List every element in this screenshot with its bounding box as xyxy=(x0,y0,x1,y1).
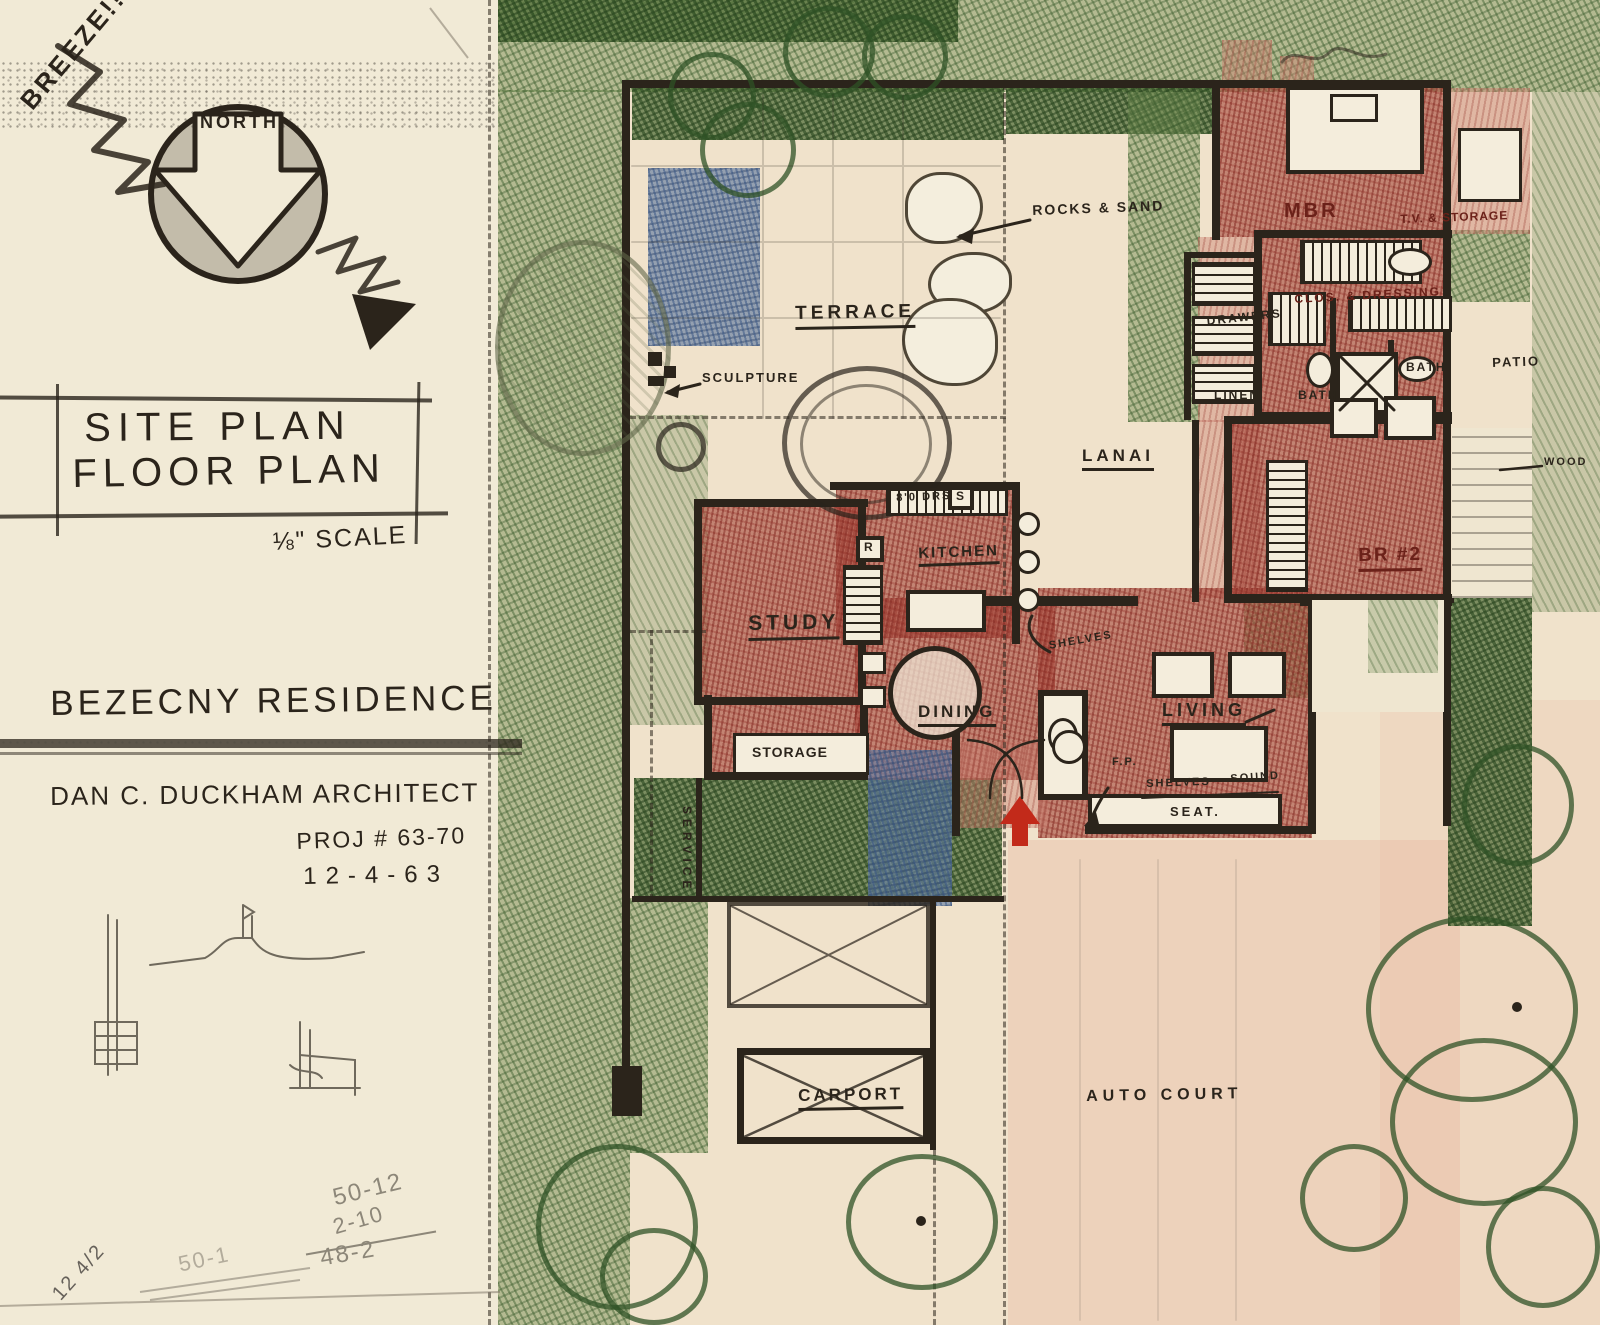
tree-inner-ring xyxy=(800,384,932,504)
sheet-title-line2: FLOOR PLAN xyxy=(72,447,386,497)
wood-deck xyxy=(1452,428,1532,598)
room-br2 xyxy=(1228,420,1448,598)
scale-note: ⅛" SCALE xyxy=(272,521,408,557)
title-box-line xyxy=(415,382,421,544)
label-sculpture: SCULPTURE xyxy=(702,370,799,385)
counter-stool xyxy=(1016,550,1040,574)
label-range: R xyxy=(864,540,875,554)
tree xyxy=(1462,744,1574,866)
room-study xyxy=(698,503,866,703)
bath-cabinet xyxy=(1384,396,1436,440)
room-label-living: LIVING xyxy=(1162,700,1246,726)
living-table xyxy=(1152,652,1214,698)
sheet-title-line1: SITE PLAN xyxy=(84,404,352,451)
rock-garden-stone xyxy=(902,298,998,386)
sheet-divider-dash xyxy=(488,0,491,1325)
faint-scribble xyxy=(140,1268,310,1300)
label-shelves-b: SHELVES xyxy=(1146,776,1211,790)
title-box-line xyxy=(0,511,448,518)
project-date: 12-4-63 xyxy=(303,860,449,891)
dining-chair xyxy=(860,652,886,674)
label-door-note: 8'0 DRS xyxy=(896,490,952,504)
wall-segment xyxy=(694,499,702,705)
label-switch: S xyxy=(956,489,966,503)
dash-line-study xyxy=(630,630,706,633)
wall-segment xyxy=(1212,85,1220,240)
wall-segment xyxy=(1224,416,1232,602)
kitchen-island xyxy=(906,590,986,632)
property-line-right xyxy=(1443,80,1451,826)
tree xyxy=(700,102,796,198)
room-label-bath: BATH xyxy=(1298,388,1338,402)
spa xyxy=(868,750,952,906)
wall-segment xyxy=(1256,230,1452,238)
property-line-left xyxy=(622,80,630,1112)
tree xyxy=(1390,1038,1578,1206)
vanity-oval xyxy=(1388,248,1432,276)
north-label: NORTH xyxy=(200,112,279,133)
planting-right-margin xyxy=(1532,92,1600,612)
room-label-dining: DINING xyxy=(918,702,996,727)
counter-stool xyxy=(1016,588,1040,612)
corner-storage-box xyxy=(1458,128,1522,202)
br2-shelves xyxy=(1266,460,1308,592)
bath-cabinet xyxy=(1330,398,1378,438)
rule-heavy xyxy=(0,739,522,748)
dash-line-service xyxy=(650,630,653,900)
faint-note: 50-1 xyxy=(176,1241,232,1277)
tree-trunk-dot xyxy=(1512,1002,1522,1012)
room-label-terrace: TERRACE xyxy=(795,301,915,330)
room-label-kitchen: KITCHEN xyxy=(918,542,999,567)
label-service: SERVICE xyxy=(680,806,694,893)
label-linen: LINEN xyxy=(1214,388,1260,402)
entry-arrow-shaft xyxy=(1012,822,1028,846)
drawers-unit xyxy=(1192,262,1256,306)
living-table xyxy=(1228,652,1286,698)
sculpture-block xyxy=(648,352,662,366)
title-box-line xyxy=(56,384,59,536)
mbr-pillow xyxy=(1330,94,1378,122)
project-number: PROJ # 63-70 xyxy=(296,822,467,855)
wall-segment xyxy=(1184,252,1262,258)
wall-segment xyxy=(694,697,870,705)
breeze-arrowhead-icon xyxy=(352,294,416,350)
patio2-plant xyxy=(1368,600,1438,673)
corner-scrawl: 12 4/2 xyxy=(48,1240,110,1306)
toilet xyxy=(1306,352,1334,388)
calc-note: 48-2 xyxy=(318,1235,378,1272)
title-box-line xyxy=(0,395,432,402)
tree xyxy=(495,240,671,456)
room-label-storage: STORAGE xyxy=(752,744,828,760)
tree xyxy=(1486,1186,1600,1308)
rule-thin xyxy=(0,752,522,755)
planting-upper-patio xyxy=(1450,230,1530,302)
tree xyxy=(600,1228,708,1325)
room-label-carport: CARPORT xyxy=(798,1084,903,1111)
tree xyxy=(1300,1144,1408,1252)
residence-name: BEZECNY RESIDENCE xyxy=(50,679,497,724)
wall-segment xyxy=(952,732,960,836)
architect-name: DAN C. DUCKHAM ARCHITECT xyxy=(50,777,480,812)
room-label-mbr: MBR xyxy=(1284,200,1339,223)
entry-planter xyxy=(1052,730,1086,764)
carport-stall-upper xyxy=(727,902,930,1008)
property-end-blob xyxy=(612,1066,642,1116)
counter-stool xyxy=(1016,512,1040,536)
wall-segment xyxy=(696,778,702,900)
sculpture-block xyxy=(664,366,676,378)
room-label-lanai: LANAI xyxy=(1082,446,1154,471)
label-wood: WOOD xyxy=(1544,456,1587,468)
wall-segment xyxy=(1184,252,1191,420)
room-label-auto-court: AUTO COURT xyxy=(1086,1085,1243,1106)
stair-hatch xyxy=(843,565,883,645)
sculpture-block xyxy=(648,376,664,386)
dining-chair xyxy=(860,686,886,708)
label-seat: SEAT. xyxy=(1170,804,1221,819)
tree xyxy=(656,422,706,472)
wall-segment xyxy=(930,900,936,1150)
room-label-patio-upper: PATIO xyxy=(1492,353,1540,370)
room-label-br2: BR #2 xyxy=(1358,544,1422,572)
tree-trunk-dot xyxy=(916,1216,926,1226)
section-sketches xyxy=(95,905,364,1095)
drawing-sheet: BREEZE!! NORTH SITE PLAN FLOOR PLAN ⅛" S… xyxy=(0,0,1600,1325)
wall-segment xyxy=(704,695,712,779)
room-label-study: STUDY xyxy=(748,610,840,641)
entry-arrow-icon xyxy=(1000,796,1040,824)
tree xyxy=(862,14,948,100)
wall-segment xyxy=(1192,420,1199,602)
label-fireplace: F.P. xyxy=(1112,756,1138,768)
room-label-bath2: BATH xyxy=(1406,360,1446,374)
